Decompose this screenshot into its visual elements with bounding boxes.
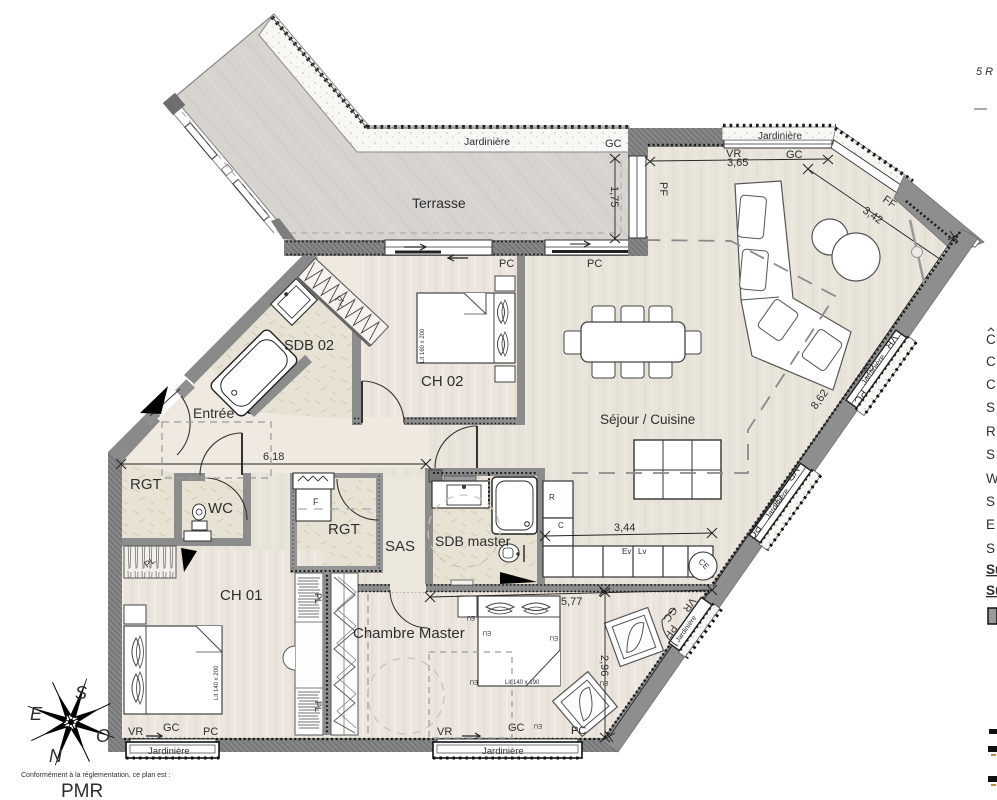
svg-text:PMR: PMR — [61, 781, 103, 800]
svg-text:5,77: 5,77 — [561, 596, 582, 608]
svg-text:PC: PC — [571, 725, 586, 737]
svg-text:VR: VR — [437, 726, 452, 738]
svg-text:GC: GC — [508, 722, 525, 734]
svg-text:S: S — [986, 400, 995, 415]
svg-text:Conformément à la réglementati: Conformément à la réglementation, ce pla… — [21, 772, 170, 779]
svg-text:Jardinière: Jardinière — [482, 746, 524, 757]
svg-text:GC: GC — [163, 722, 180, 734]
svg-text:Jardinière: Jardinière — [758, 131, 802, 142]
svg-text:5 R: 5 R — [976, 66, 993, 78]
svg-text:2,96: 2,96 — [598, 655, 610, 676]
svg-text:PC: PC — [203, 726, 218, 738]
svg-text:Su: Su — [986, 583, 997, 598]
svg-text:EU: EU — [483, 629, 491, 635]
svg-text:Terrasse: Terrasse — [412, 195, 466, 211]
svg-text:Ev: Ev — [622, 547, 631, 556]
svg-text:Jardinière: Jardinière — [464, 136, 510, 148]
svg-text:EU: EU — [467, 614, 475, 620]
svg-text:R: R — [549, 493, 555, 502]
svg-text:3,65: 3,65 — [727, 157, 748, 169]
svg-text:C: C — [986, 332, 996, 347]
svg-text:Chambre Master: Chambre Master — [353, 625, 465, 642]
svg-text:C: C — [986, 377, 996, 392]
svg-text:Lv: Lv — [638, 547, 646, 556]
svg-text:EU: EU — [550, 634, 558, 640]
svg-text:3,44: 3,44 — [614, 522, 635, 534]
svg-text:PF: PF — [657, 182, 669, 196]
svg-text:Lit 140 x 200: Lit 140 x 200 — [214, 665, 220, 700]
svg-text:O: O — [96, 726, 110, 746]
svg-text:PC: PC — [499, 258, 514, 270]
svg-text:Lit 140 x 190: Lit 140 x 190 — [505, 680, 540, 686]
svg-text:PC: PC — [587, 258, 602, 270]
svg-text:SDB master: SDB master — [435, 533, 511, 549]
svg-text:E: E — [30, 704, 43, 724]
svg-text:Su: Su — [986, 562, 997, 577]
svg-text:S: S — [75, 683, 87, 703]
svg-text:S: S — [986, 494, 995, 509]
svg-text:EU: EU — [534, 722, 542, 728]
svg-text:RGT: RGT — [130, 476, 162, 493]
svg-text:CH 01: CH 01 — [220, 587, 263, 604]
svg-text:EU: EU — [470, 678, 478, 684]
svg-text:W: W — [986, 471, 997, 486]
svg-text:SDB 02: SDB 02 — [284, 338, 334, 354]
svg-text:N: N — [49, 746, 63, 766]
svg-text:Entrée: Entrée — [193, 405, 234, 421]
svg-text:6,18: 6,18 — [263, 451, 284, 463]
svg-text:WC: WC — [208, 500, 233, 517]
svg-text:RGT: RGT — [328, 521, 360, 538]
svg-text:Jardinière: Jardinière — [148, 746, 190, 757]
svg-text:R: R — [986, 424, 996, 439]
svg-text:S: S — [986, 541, 995, 556]
svg-text:SAS: SAS — [385, 538, 415, 555]
svg-text:1,75: 1,75 — [608, 186, 620, 207]
svg-text:VR: VR — [128, 726, 143, 738]
svg-text:PL: PL — [313, 593, 323, 604]
svg-text:EU: EU — [600, 679, 608, 685]
svg-text:CH 02: CH 02 — [421, 373, 464, 390]
svg-text:PL: PL — [313, 701, 323, 712]
svg-text:Lit 160 x 200: Lit 160 x 200 — [420, 328, 426, 363]
svg-text:E: E — [986, 517, 995, 532]
svg-text:GC: GC — [605, 138, 622, 150]
svg-text:C: C — [986, 354, 996, 369]
svg-text:C: C — [558, 521, 564, 530]
svg-text:F: F — [313, 497, 319, 507]
svg-text:Séjour / Cuisine: Séjour / Cuisine — [600, 412, 695, 427]
svg-text:S: S — [986, 447, 995, 462]
